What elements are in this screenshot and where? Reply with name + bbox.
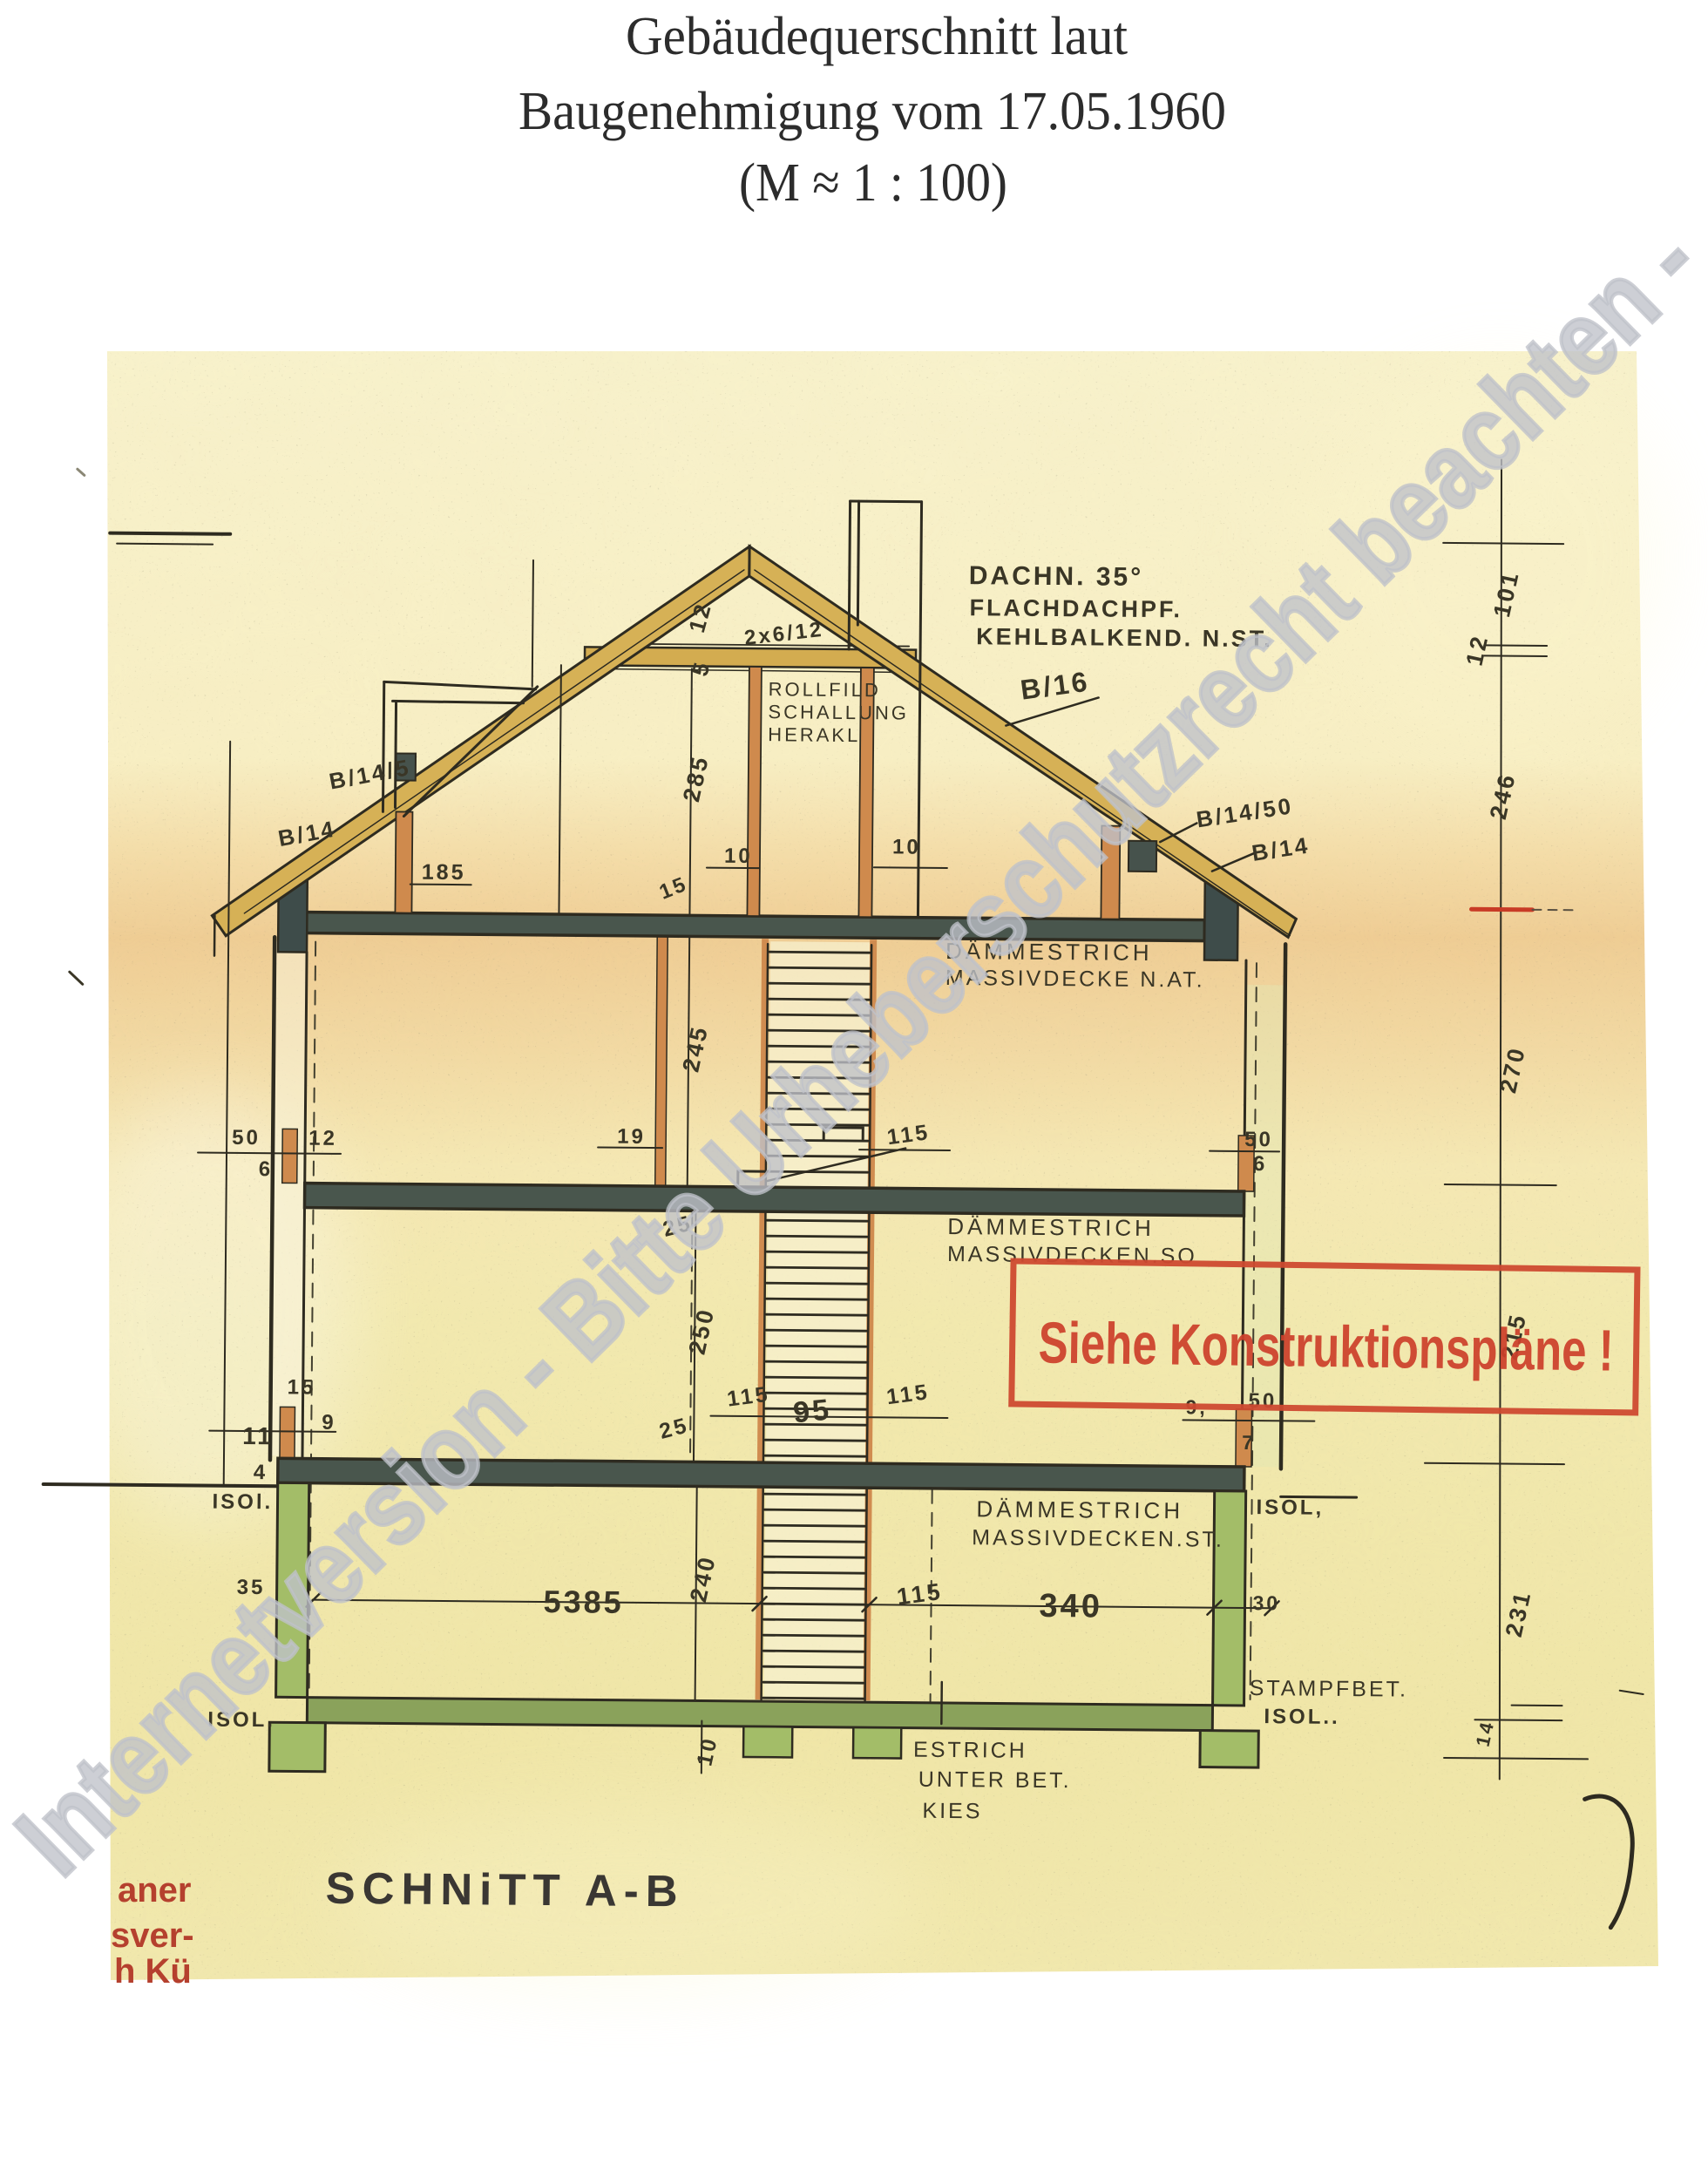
svg-text:5385: 5385 [543,1584,623,1620]
svg-text:Gebäudequerschnitt laut: Gebäudequerschnitt laut [626,7,1128,66]
svg-text:11: 11 [242,1422,274,1449]
svg-text:ESTRICH: ESTRICH [913,1738,1027,1763]
svg-text:4: 4 [254,1461,268,1484]
svg-text:ISOL,: ISOL, [1256,1496,1324,1520]
svg-text:DÄMMESTRICH: DÄMMESTRICH [947,1213,1155,1241]
svg-text:SCHALLUNG: SCHALLUNG [768,701,909,723]
svg-text:ISOl.: ISOl. [212,1490,273,1515]
svg-text:340: 340 [1039,1588,1102,1625]
svg-text:12: 12 [308,1127,337,1150]
svg-text:MASSIVDECKEN.ST.: MASSIVDECKEN.ST. [972,1525,1224,1552]
svg-text:aner: aner [118,1871,192,1909]
svg-text:ISOL..: ISOL.. [1264,1705,1340,1729]
svg-text:6: 6 [1253,1152,1268,1176]
svg-text:7: 7 [1242,1431,1256,1454]
svg-text:15: 15 [288,1375,316,1399]
svg-text:185: 185 [422,860,466,885]
svg-text:DÄMMESTRICH: DÄMMESTRICH [976,1496,1183,1523]
svg-text:9: 9 [322,1411,336,1435]
svg-text:ROLLFILD: ROLLFILD [769,678,881,701]
svg-text:95: 95 [791,1393,832,1429]
svg-text:UNTER BET.: UNTER BET. [918,1767,1072,1794]
svg-text:6: 6 [259,1157,274,1181]
svg-text:10: 10 [892,835,921,858]
svg-text:STAMPFBET.: STAMPFBET. [1250,1676,1409,1702]
svg-text:SCHNiTT A-B: SCHNiTT A-B [325,1863,684,1916]
svg-text:KIES: KIES [922,1799,982,1824]
svg-text:FLACHDACHPF.: FLACHDACHPF. [969,594,1183,622]
svg-text:h Kü: h Kü [114,1952,192,1991]
svg-text:Baugenehmigung vom 17.05.1960: Baugenehmigung vom 17.05.1960 [518,82,1226,141]
svg-text:50: 50 [232,1126,261,1150]
svg-text:DACHN. 35°: DACHN. 35° [969,561,1144,592]
svg-text:(M ≈ 1 : 100): (M ≈ 1 : 100) [739,153,1007,213]
svg-text:10: 10 [724,844,753,868]
svg-text:30: 30 [1252,1591,1280,1614]
svg-text:sver-: sver- [111,1916,194,1955]
svg-text:Siehe Konstruktionspläne !: Siehe Konstruktionspläne ! [1038,1310,1614,1383]
svg-text:19: 19 [617,1125,646,1149]
svg-text:HERAKL: HERAKL [768,723,860,746]
svg-text:50: 50 [1244,1128,1273,1151]
